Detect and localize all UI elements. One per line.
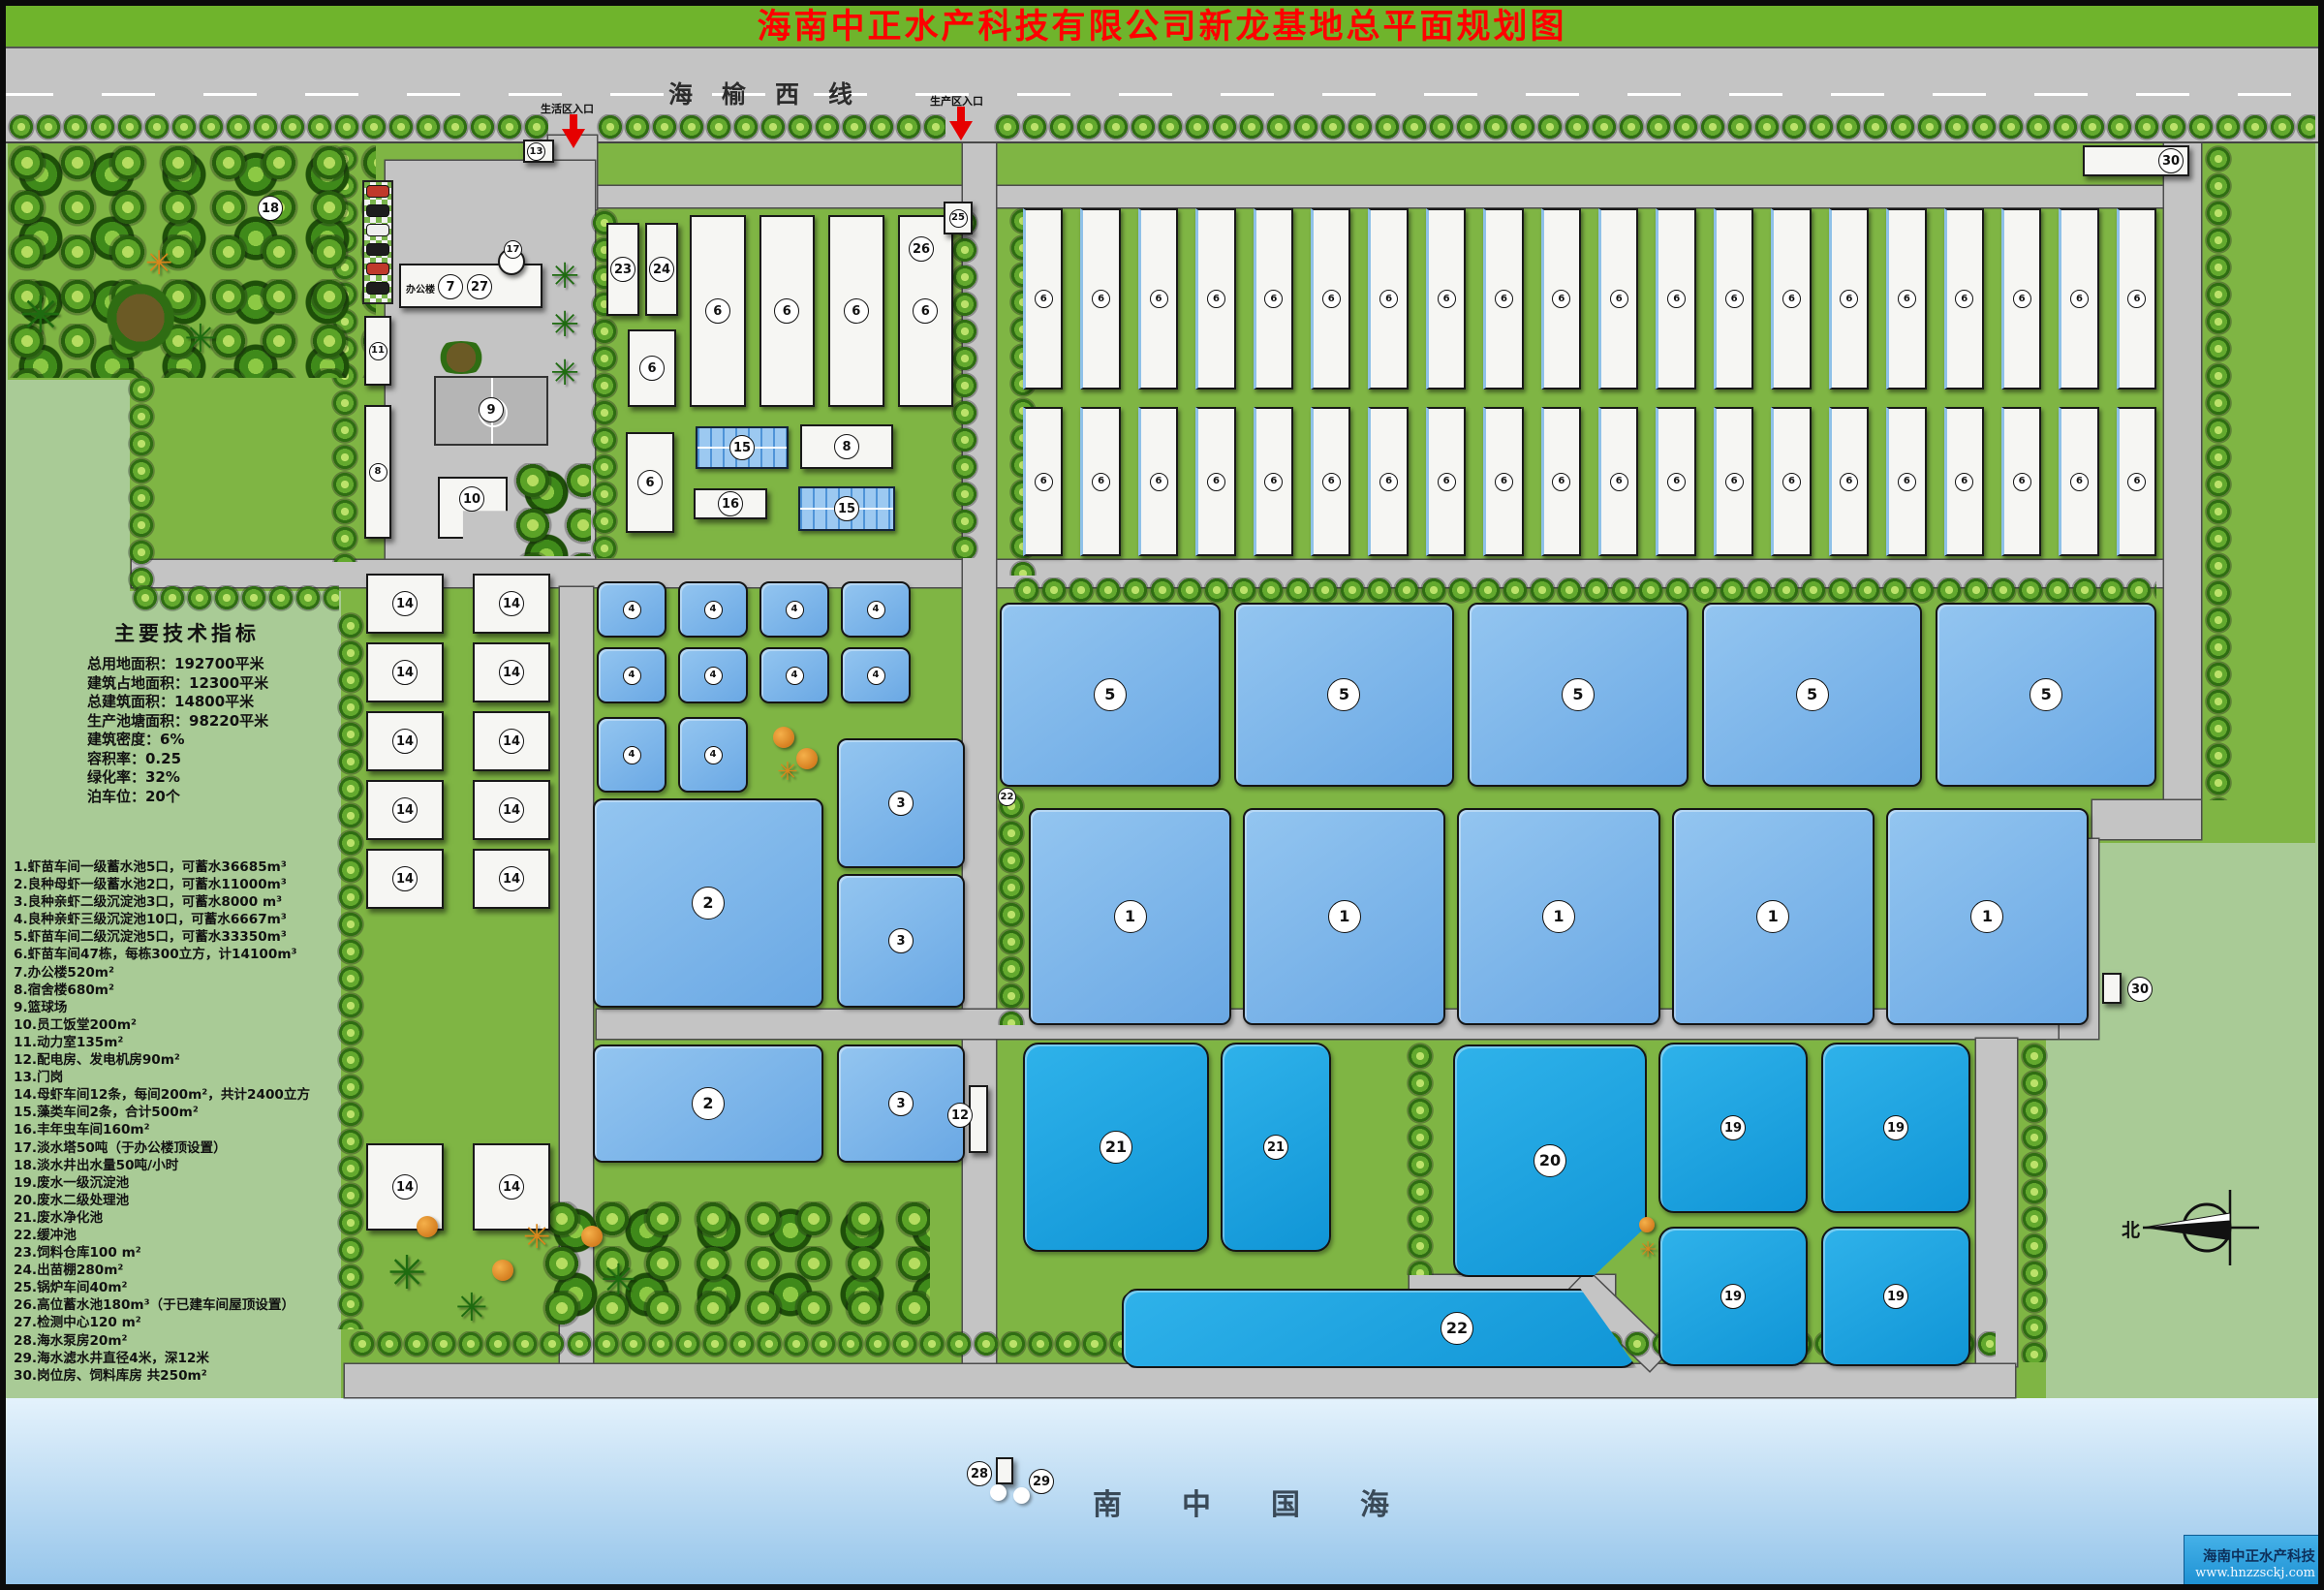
seedling-shed: 24 xyxy=(645,223,678,316)
post-building-east xyxy=(2102,973,2122,1004)
indicator-line: 建筑占地面积：12300平米 xyxy=(87,674,268,694)
label-workshop: 6 xyxy=(1610,473,1628,491)
label-workshop: 6 xyxy=(1264,290,1283,308)
label-workshop: 6 xyxy=(1322,290,1341,308)
primary-reservoir: 1 xyxy=(1457,808,1659,1025)
legend-item: 15.藻类车间2条，合计500m² xyxy=(14,1104,310,1121)
settling-pond-3rd: 4 xyxy=(678,717,748,793)
car-icon xyxy=(366,282,389,295)
secondary-settling-pond: 5 xyxy=(1468,603,1689,787)
label-pond4: 4 xyxy=(623,746,641,764)
label-dormitory-west: 8 xyxy=(369,463,387,482)
secondary-settling-pond: 5 xyxy=(1702,603,1923,787)
label-seedling-shed: 24 xyxy=(649,257,674,282)
compass: 北 xyxy=(2122,1184,2267,1271)
label-workshop: 6 xyxy=(1092,290,1110,308)
primary-treatment-pond: 19 xyxy=(1821,1227,1970,1366)
label-storehouse: 30 xyxy=(2158,148,2184,173)
legend-item: 27.检测中心120 m² xyxy=(14,1314,310,1331)
broodstock-grid: 14141414141414141414 xyxy=(366,574,550,909)
shrimp-workshop: 6 xyxy=(1080,208,1120,390)
shrimp-workshop: 6 xyxy=(1656,208,1695,390)
highway-centerline xyxy=(0,93,2324,96)
broodstock-workshop: 14 xyxy=(473,711,550,771)
shrimp-workshop: 6 xyxy=(690,215,746,407)
legend-item: 16.丰年虫车间160m² xyxy=(14,1121,310,1138)
shrimp-workshop: 6 xyxy=(1541,208,1581,390)
settling-pond-2nd: 3 xyxy=(837,874,965,1008)
label-workshop: 6 xyxy=(2127,290,2146,308)
shrimp-workshop: 6 xyxy=(1138,208,1178,390)
pond4-row-a: 4444 xyxy=(597,581,911,638)
label-filter-well: 29 xyxy=(1029,1469,1054,1494)
label-workshop: 6 xyxy=(1379,290,1398,308)
broodstock-workshop: 14 xyxy=(473,642,550,702)
shrub-icon xyxy=(492,1260,513,1281)
shrimp-workshop: 6 xyxy=(2001,407,2041,556)
purification-pond: 21 xyxy=(1023,1043,1209,1252)
label-workshop: 6 xyxy=(1438,473,1456,491)
settling-pond-3rd: 4 xyxy=(759,581,829,638)
label-workshop: 6 xyxy=(1207,290,1225,308)
label-workshop: 6 xyxy=(844,298,869,324)
label-pond5: 5 xyxy=(2030,678,2062,711)
boiler-room: 25 xyxy=(944,202,973,234)
broodstock-workshop: 14 xyxy=(473,574,550,634)
pond1-row: 11111 xyxy=(1029,808,2089,1025)
legend-item: 28.海水泵房20m² xyxy=(14,1332,310,1350)
label-workshop: 6 xyxy=(1955,473,1973,491)
pond5-row: 55555 xyxy=(1000,603,2156,787)
workshop-row-south: 66666666666666666666 xyxy=(1023,407,2156,556)
settling-pond-3rd: 4 xyxy=(678,647,748,703)
label-pond4: 4 xyxy=(704,601,723,619)
north-label: 北 xyxy=(2122,1216,2140,1242)
shrimp-workshop: 6 xyxy=(1771,407,1811,556)
label-workshop: 6 xyxy=(1955,290,1973,308)
primary-reservoir: 1 xyxy=(1672,808,1875,1025)
label-b14: 14 xyxy=(499,729,524,754)
label-pond1: 1 xyxy=(1328,900,1361,933)
title-banner: 海南中正水产科技有限公司新龙基地总平面规划图 xyxy=(0,0,2324,47)
label-pond4: 4 xyxy=(623,601,641,619)
legend-list: 1.虾苗车间一级蓄水池5口，可蓄水36685m³2.良种母虾一级蓄水池2口，可蓄… xyxy=(14,858,310,1385)
label-sea-pump: 28 xyxy=(967,1461,992,1486)
label-b14: 14 xyxy=(392,591,418,616)
label-pond2: 2 xyxy=(692,1087,725,1120)
label-workshop: 6 xyxy=(1725,473,1744,491)
legend-item: 8.宿舍楼680m² xyxy=(14,982,310,999)
shrimp-workshop: 6 xyxy=(759,215,816,407)
road-vertical-west xyxy=(560,587,593,1364)
label-workshop: 6 xyxy=(1035,290,1053,308)
palm-tree-icon: ✳ xyxy=(455,1289,488,1327)
palm-tree-icon: ✳ xyxy=(184,320,217,359)
label-boiler-room: 25 xyxy=(949,209,968,228)
palm-tree-icon: ✳ xyxy=(550,308,579,343)
label-pond3: 3 xyxy=(888,928,914,953)
label-pond3: 3 xyxy=(888,791,914,816)
label-b14: 14 xyxy=(499,1174,524,1200)
shrimp-workshop: 6 xyxy=(1714,208,1753,390)
road-east-upper xyxy=(2164,143,2201,800)
post-feed-storehouse: 30 xyxy=(2083,145,2189,176)
label-workshop: 6 xyxy=(1840,290,1858,308)
legend-item: 14.母虾车间12条，每间200m²，共计2400立方 xyxy=(14,1086,310,1104)
shrub-icon xyxy=(417,1216,438,1237)
shrimp-workshop: 6 xyxy=(1368,407,1408,556)
label-workshop: 6 xyxy=(2070,473,2089,491)
indicator-line: 总建筑面积：14800平米 xyxy=(87,693,268,712)
shrimp-workshop: 6 xyxy=(1598,407,1638,556)
label-basketball-court: 9 xyxy=(479,397,504,422)
settling-pond-2nd: 3 xyxy=(837,1044,965,1163)
label-pond3: 3 xyxy=(888,1091,914,1116)
settling-pond-3rd: 4 xyxy=(841,581,911,638)
label-buffer-small: 22 xyxy=(998,788,1016,806)
label-pond4: 4 xyxy=(786,667,804,685)
label-pond21: 21 xyxy=(1100,1131,1132,1164)
car-icon xyxy=(366,263,389,275)
legend-item: 26.高位蓄水池180m³（于已建车间屋顶设置） xyxy=(14,1296,310,1314)
legend-item: 25.锅炉车间40m² xyxy=(14,1279,310,1296)
compass-icon xyxy=(2122,1184,2267,1271)
label-workshop: 6 xyxy=(2013,290,2031,308)
legend-item: 18.淡水井出水量50吨/小时 xyxy=(14,1157,310,1174)
feed-warehouse: 23 xyxy=(606,223,639,316)
shrimp-workshop: 6 xyxy=(1368,208,1408,390)
label-b14: 14 xyxy=(392,729,418,754)
label-pond4: 4 xyxy=(786,601,804,619)
shrimp-workshop: 6 xyxy=(1023,208,1063,390)
dormitory-west: 8 xyxy=(364,405,391,539)
shrimp-workshop: 6 xyxy=(1483,407,1523,556)
filter-well-icon xyxy=(1013,1487,1030,1504)
label-pond1: 1 xyxy=(1756,900,1789,933)
legend-item: 12.配电房、发电机房90m² xyxy=(14,1051,310,1069)
label-freshwater-well: 18 xyxy=(258,196,283,221)
shrimp-workshop: 6 xyxy=(1886,407,1926,556)
broodstock-workshop: 14 xyxy=(473,849,550,909)
road-coastal xyxy=(345,1364,2015,1397)
road-vertical-central xyxy=(963,143,996,1366)
label-pond4: 4 xyxy=(704,746,723,764)
shrimp-workshop: 6 xyxy=(1886,208,1926,390)
legend-item: 2.良种母虾一级蓄水池2口，可蓄水11000m³ xyxy=(14,876,310,893)
label-workshop: 6 xyxy=(1552,290,1570,308)
palm-tree-icon: ✳ xyxy=(387,1250,426,1296)
purification-pond: 21 xyxy=(1221,1043,1331,1252)
label-pond1: 1 xyxy=(1542,900,1575,933)
indicator-line: 总用地面积：192700平米 xyxy=(87,655,268,674)
label-workshop: 6 xyxy=(1150,290,1168,308)
label-workshop: 6 xyxy=(705,298,730,324)
shrimp-workshop: 6 xyxy=(1829,208,1869,390)
indicator-line: 建筑密度：6% xyxy=(87,731,268,750)
label-pond19: 19 xyxy=(1720,1284,1746,1309)
label-b14: 14 xyxy=(499,797,524,823)
plaza-garden xyxy=(430,341,492,374)
shrimp-workshop: 6 xyxy=(2117,407,2156,556)
shrimp-workshop: 6 xyxy=(1426,208,1466,390)
workshop-row-north: 66666666666666666666 xyxy=(1023,208,2156,390)
settling-pond-3rd: 4 xyxy=(759,647,829,703)
shrimp-workshop: 6 xyxy=(2059,208,2098,390)
label-office: 7 xyxy=(438,274,463,299)
primary-treatment-pond: 19 xyxy=(1821,1043,1970,1213)
label-workshop: 6 xyxy=(1438,290,1456,308)
label-workshop: 6 xyxy=(1495,473,1513,491)
legend-item: 11.动力室135m² xyxy=(14,1034,310,1051)
label-workshop: 6 xyxy=(1207,473,1225,491)
shrimp-workshop: 6 xyxy=(1829,407,1869,556)
shrimp-workshop: 6 xyxy=(1311,407,1350,556)
site-plan: 海南中正水产科技有限公司新龙基地总平面规划图 海榆西线 生活区入口 生产区入口 … xyxy=(0,0,2324,1590)
label-workshop: 6 xyxy=(1150,473,1168,491)
label-workshop: 6 xyxy=(1495,290,1513,308)
shrimp-workshop: 6 xyxy=(1023,407,1063,556)
broodstock-workshop: 14 xyxy=(473,780,550,840)
entrance-living-arrow-icon xyxy=(562,114,585,159)
sea-name: 南中国海 xyxy=(1093,1481,1449,1523)
car-icon xyxy=(366,185,389,198)
label-b14: 14 xyxy=(499,866,524,891)
label-b14: 14 xyxy=(392,1174,418,1200)
orange-garden: ✳ xyxy=(767,719,831,795)
broodstock-workshop: 14 xyxy=(366,711,444,771)
label-dormitory-east: 8 xyxy=(834,434,859,459)
label-pond4: 4 xyxy=(867,601,885,619)
car-icon xyxy=(366,204,389,217)
shrimp-workshop: 6 xyxy=(1080,407,1120,556)
car-icon xyxy=(366,224,389,236)
palm-tree-icon: ✳ xyxy=(601,1260,636,1302)
label-test-center: 27 xyxy=(467,274,492,299)
shrimp-workshop: 6 xyxy=(1598,208,1638,390)
label-canteen: 10 xyxy=(459,486,484,512)
power-house: 11 xyxy=(364,316,391,386)
primary-treatment-grid: 19191919 xyxy=(1658,1043,1970,1366)
settling-pond-3rd: 4 xyxy=(597,717,666,793)
shrimp-workshop: 6 xyxy=(1254,208,1293,390)
legend-item: 7.办公楼520m² xyxy=(14,964,310,982)
palm-tree-icon: ✳ xyxy=(550,260,579,295)
label-workshop: 6 xyxy=(2070,290,2089,308)
label-pond20: 20 xyxy=(1534,1144,1566,1177)
legend-item: 29.海水滤水井直径4米，深12米 xyxy=(14,1350,310,1367)
footer-website: www.hnzzsckj.com xyxy=(2195,1566,2315,1580)
shrimp-workshop: 6 xyxy=(2001,208,2041,390)
brine-shrimp-workshop: 16 xyxy=(694,488,767,519)
indicator-line: 容积率：0.25 xyxy=(87,750,268,769)
indicators-list: 总用地面积：192700平米建筑占地面积：12300平米总建筑面积：14800平… xyxy=(87,655,268,806)
secondary-settling-pond: 5 xyxy=(1234,603,1455,787)
footer-company: 海南中正水产科技 xyxy=(2203,1545,2315,1566)
legend-item: 19.废水一级沉淀池 xyxy=(14,1174,310,1192)
settling-pond-2nd: 3 xyxy=(837,738,965,868)
shrub-icon xyxy=(581,1226,603,1247)
broodstock-workshop: 14 xyxy=(366,574,444,634)
label-pond5: 5 xyxy=(1094,678,1127,711)
label-algae-pool: 15 xyxy=(729,435,755,460)
label-workshop: 6 xyxy=(1264,473,1283,491)
label-water-tower: 17 xyxy=(504,240,522,259)
secondary-settling-pond: 5 xyxy=(1936,603,2156,787)
primary-reservoir: 1 xyxy=(1029,808,1231,1025)
page-title: 海南中正水产科技有限公司新龙基地总平面规划图 xyxy=(757,0,1566,48)
label-workshop: 6 xyxy=(913,298,938,324)
legend-panel-upper xyxy=(8,380,130,591)
settling-pond-3rd: 4 xyxy=(597,581,666,638)
road-east-jog xyxy=(2092,800,2201,839)
legend-item: 6.虾苗车间47栋，每栋300立方，计14100m³ xyxy=(14,946,310,963)
legend-item: 22.缓冲池 xyxy=(14,1227,310,1244)
shrimp-workshop: 6 xyxy=(1138,407,1178,556)
primary-reservoir: 1 xyxy=(1886,808,2089,1025)
label-workshop: 6 xyxy=(1322,473,1341,491)
shrimp-workshop: 6 xyxy=(1944,208,1984,390)
footer-logo: 海南中正水产科技 www.hnzzsckj.com xyxy=(2184,1535,2324,1590)
office-building-label: 办公楼 xyxy=(406,281,435,296)
primary-treatment-pond: 19 xyxy=(1658,1227,1808,1366)
label-workshop: 6 xyxy=(1667,290,1686,308)
shrimp-workshop: 6 xyxy=(628,329,676,407)
algae-workshop-pool: 15 xyxy=(696,426,789,469)
road-block-top xyxy=(587,186,2201,207)
car-icon xyxy=(366,243,389,256)
settling-pond-3rd: 4 xyxy=(597,647,666,703)
entrance-production-arrow-icon xyxy=(949,107,973,151)
label-algae-pool: 15 xyxy=(834,496,859,521)
broodstock-reservoir: 2 xyxy=(593,1044,823,1163)
label-pond4: 4 xyxy=(623,667,641,685)
algae-workshop-pool: 15 xyxy=(798,486,895,531)
label-pond19: 19 xyxy=(1883,1115,1908,1140)
label-pond4: 4 xyxy=(704,667,723,685)
pond4-row-b: 4444 xyxy=(597,647,911,703)
shrimp-workshop: 6 xyxy=(1944,407,1984,556)
pond4-row-c: 44 xyxy=(597,717,748,793)
legend-item: 24.出苗棚280m² xyxy=(14,1262,310,1279)
legend-item: 13.门岗 xyxy=(14,1069,310,1086)
label-b14: 14 xyxy=(392,797,418,823)
label-post-east: 30 xyxy=(2127,977,2153,1002)
label-workshop: 6 xyxy=(2127,473,2146,491)
label-workshop: 6 xyxy=(1610,290,1628,308)
label-feed-warehouse: 23 xyxy=(610,257,635,282)
shrimp-workshop: 6 xyxy=(1771,208,1811,390)
label-pond5: 5 xyxy=(1796,678,1829,711)
label-pond19: 19 xyxy=(1883,1284,1908,1309)
label-gate: 13 xyxy=(527,142,545,161)
shrimp-workshop: 6 xyxy=(1311,208,1350,390)
label-workshop: 6 xyxy=(1035,473,1053,491)
shrimp-workshop: 6 xyxy=(2117,208,2156,390)
label-workshop: 6 xyxy=(1898,473,1916,491)
label-workshop: 6 xyxy=(1782,473,1801,491)
legend-item: 9.篮球场 xyxy=(14,999,310,1016)
indicator-line: 泊车位：20个 xyxy=(87,788,268,807)
label-workshop: 6 xyxy=(639,356,665,381)
palm-tree-icon: ✳ xyxy=(19,291,62,341)
label-elevated-tank: 26 xyxy=(909,236,934,262)
label-pond4: 4 xyxy=(867,667,885,685)
shrimp-workshop: 6 xyxy=(2059,407,2098,556)
indicator-line: 生产池塘面积：98220平米 xyxy=(87,712,268,732)
shrimp-workshop: 6 xyxy=(1656,407,1695,556)
buffer-pond: 22 xyxy=(1122,1289,1637,1368)
label-workshop: 6 xyxy=(2013,473,2031,491)
broodstock-workshop: 14 xyxy=(366,780,444,840)
settling-pond-3rd: 4 xyxy=(678,581,748,638)
label-b14: 14 xyxy=(392,866,418,891)
settling-pond-3rd: 4 xyxy=(841,647,911,703)
legend-item: 23.饲料仓库100 m² xyxy=(14,1244,310,1262)
broodstock-workshop: 14 xyxy=(366,642,444,702)
label-pond1: 1 xyxy=(1114,900,1147,933)
label-pond5: 5 xyxy=(1327,678,1360,711)
shrimp-workshop: 6 xyxy=(1195,208,1235,390)
label-b14: 14 xyxy=(499,591,524,616)
label-workshop: 6 xyxy=(1725,290,1744,308)
legend-item: 20.废水二级处理池 xyxy=(14,1192,310,1209)
sea-pump-house xyxy=(996,1457,1013,1484)
label-workshop: 6 xyxy=(1379,473,1398,491)
shrimp-workshop: 6 xyxy=(828,215,884,407)
legend-item: 1.虾苗车间一级蓄水池5口，可蓄水36685m³ xyxy=(14,858,310,876)
label-pond22: 22 xyxy=(1441,1312,1473,1345)
shrimp-workshop: 6 xyxy=(1254,407,1293,556)
broodstock-reservoir: 2 xyxy=(593,798,823,1008)
label-b14: 14 xyxy=(499,660,524,685)
shrimp-workshop: 6 xyxy=(1426,407,1466,556)
label-pond21: 21 xyxy=(1263,1135,1288,1160)
palm-tree-icon: ✳ xyxy=(145,247,173,280)
shrimp-workshop: 6 xyxy=(1714,407,1753,556)
primary-treatment-pond: 19 xyxy=(1658,1043,1808,1213)
indicator-line: 绿化率：32% xyxy=(87,768,268,788)
shrimp-workshop: 6 xyxy=(626,432,674,533)
park-flowerbed xyxy=(97,281,184,355)
legend-item: 30.岗位房、饲料库房 共250m² xyxy=(14,1367,310,1385)
label-generator-room: 12 xyxy=(947,1103,973,1128)
label-workshop: 6 xyxy=(1092,473,1110,491)
label-workshop: 6 xyxy=(1782,290,1801,308)
filter-well-icon xyxy=(990,1484,1007,1501)
broodstock-workshop: 14 xyxy=(366,849,444,909)
shrimp-workshop: 6 xyxy=(1541,407,1581,556)
label-workshop: 6 xyxy=(1552,473,1570,491)
palm-tree-icon: ✳ xyxy=(523,1221,551,1254)
label-power-house: 11 xyxy=(369,342,387,360)
label-workshop: 6 xyxy=(637,470,663,495)
label-workshop: 6 xyxy=(774,298,799,324)
legend-item: 17.淡水塔50吨（于办公楼顶设置） xyxy=(14,1139,310,1157)
dormitory-east: 8 xyxy=(800,424,893,469)
shrimp-workshop: 6 xyxy=(1195,407,1235,556)
shrimp-workshop: 6 xyxy=(1483,208,1523,390)
highway-name: 海榆西线 xyxy=(668,76,882,110)
primary-reservoir: 1 xyxy=(1243,808,1445,1025)
label-pond19: 19 xyxy=(1720,1115,1746,1140)
legend-item: 4.良种亲虾三级沉淀池10口，可蓄水6667m³ xyxy=(14,911,310,928)
label-workshop: 6 xyxy=(1840,473,1858,491)
secondary-treatment-pond: 20 xyxy=(1453,1044,1647,1277)
legend-item: 10.员工饭堂200m² xyxy=(14,1016,310,1034)
road-east-lower xyxy=(1976,1039,2017,1366)
label-b14: 14 xyxy=(392,660,418,685)
secondary-settling-pond: 5 xyxy=(1000,603,1221,787)
